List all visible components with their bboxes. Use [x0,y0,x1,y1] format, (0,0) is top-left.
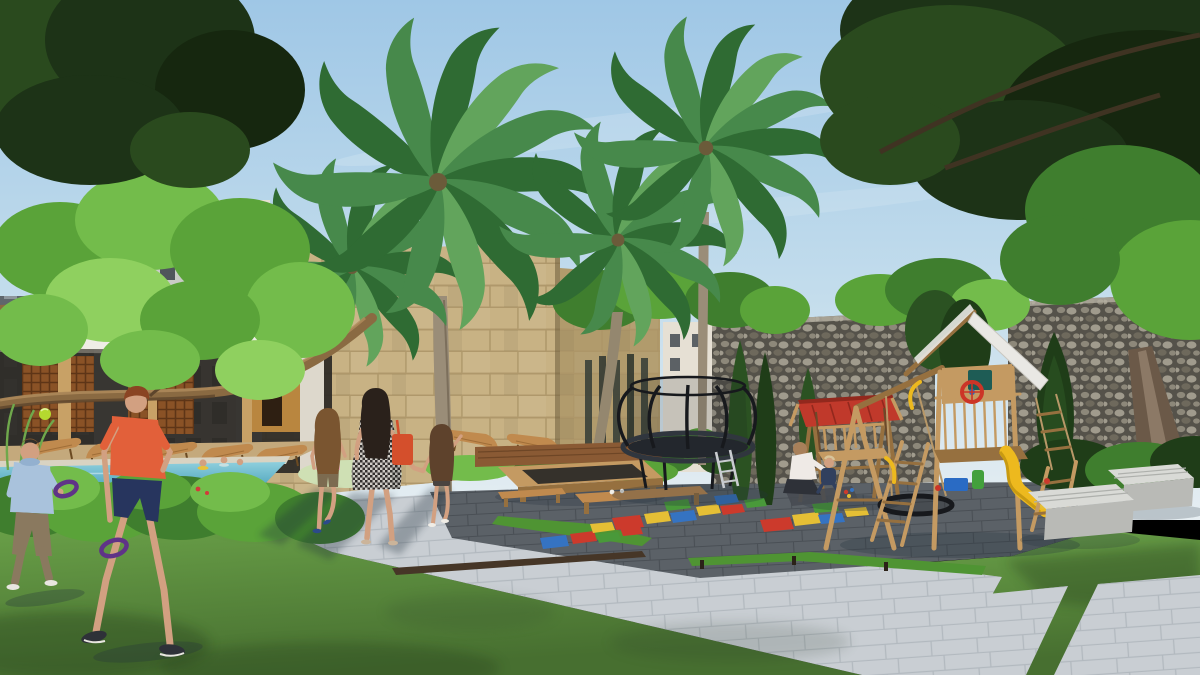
woman-sandal [388,541,398,546]
boy-a-shoe [45,580,58,586]
wall-corner-shadow [555,243,560,472]
courtyard-render [0,0,1200,675]
steering-wheel [962,382,982,402]
climb-hold [1044,478,1050,484]
green-ball [39,408,51,420]
woman-sandal [361,540,371,545]
edge-post [792,556,796,565]
edge-post [700,560,704,569]
girl-hair [314,408,341,474]
mid-canopy [1000,215,1120,305]
boy-a-shoe [7,584,20,590]
dappled-shadow [610,622,850,662]
toy-figure [972,470,984,489]
hood [20,458,40,466]
dappled-shadow [385,594,555,630]
toy-box [944,478,968,491]
girl-shoe [313,529,322,533]
toddler-body [821,468,836,485]
girl-leg [319,484,322,528]
mother-torso [789,452,817,481]
woman-hair [361,388,391,459]
edge-post [884,562,888,571]
little-girl-shoe [441,519,449,523]
red-flower [196,487,201,492]
little-girl-shoe [428,523,436,527]
shoulder-bag [392,434,413,465]
held-hands [420,467,425,472]
little-girl-hair [429,424,454,481]
toy-ball [935,485,941,491]
red-flower [205,491,209,495]
